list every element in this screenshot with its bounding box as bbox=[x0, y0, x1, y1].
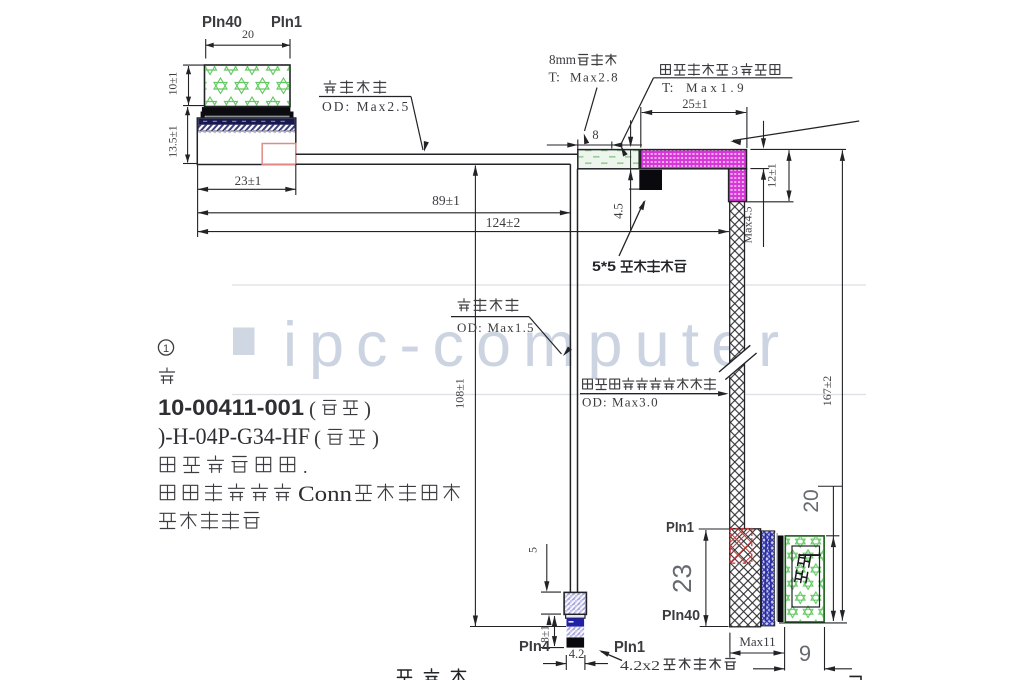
svg-text:10±1: 10±1 bbox=[168, 71, 180, 95]
svg-text:(: ( bbox=[309, 397, 316, 421]
svg-text:PIn40: PIn40 bbox=[662, 607, 700, 624]
svg-text:): ) bbox=[364, 397, 371, 421]
svg-text:1: 1 bbox=[163, 343, 169, 355]
svg-text:Conn: Conn bbox=[298, 481, 352, 506]
svg-text:8: 8 bbox=[592, 128, 598, 142]
svg-text:(: ( bbox=[314, 426, 321, 450]
svg-text:124±2: 124±2 bbox=[486, 215, 520, 230]
svg-text:5*5: 5*5 bbox=[592, 258, 616, 274]
svg-text:20: 20 bbox=[242, 27, 254, 41]
svg-text:OD: Max1.5: OD: Max1.5 bbox=[457, 320, 535, 335]
svg-text:.: . bbox=[303, 457, 308, 477]
svg-text:Max11: Max11 bbox=[739, 634, 775, 649]
svg-text:89±1: 89±1 bbox=[432, 193, 460, 208]
svg-text:Max2.8: Max2.8 bbox=[570, 70, 619, 85]
svg-text:12±1: 12±1 bbox=[765, 163, 779, 188]
svg-text:T:: T: bbox=[662, 80, 673, 95]
svg-text:9: 9 bbox=[799, 641, 811, 666]
svg-text:4.2: 4.2 bbox=[569, 647, 585, 661]
svg-text:20: 20 bbox=[800, 489, 823, 512]
svg-text:3: 3 bbox=[732, 63, 739, 78]
svg-text:108±1: 108±1 bbox=[453, 378, 467, 409]
svg-text:10-00411-001: 10-00411-001 bbox=[158, 395, 304, 420]
svg-text:): ) bbox=[372, 426, 379, 450]
svg-text:23: 23 bbox=[667, 564, 697, 593]
svg-text:13.5±1: 13.5±1 bbox=[168, 125, 180, 157]
svg-text:4.2x2: 4.2x2 bbox=[620, 659, 660, 674]
svg-text:25±1: 25±1 bbox=[682, 97, 708, 111]
svg-text:T:: T: bbox=[549, 70, 560, 85]
svg-text:23±1: 23±1 bbox=[235, 173, 262, 188]
svg-text:PIn1: PIn1 bbox=[666, 519, 694, 536]
svg-text:8mm: 8mm bbox=[549, 52, 576, 67]
svg-text:ipc-computer: ipc-computer bbox=[283, 310, 791, 380]
svg-text:OD: Max2.5: OD: Max2.5 bbox=[322, 99, 410, 114]
svg-text:PIn1: PIn1 bbox=[271, 14, 302, 31]
svg-text:5: 5 bbox=[526, 547, 540, 553]
svg-text:167±2: 167±2 bbox=[820, 376, 834, 407]
svg-text:Max1.9: Max1.9 bbox=[686, 80, 747, 95]
svg-text:PIn4: PIn4 bbox=[519, 638, 551, 655]
svg-text:PIn40: PIn40 bbox=[202, 14, 242, 31]
svg-text:4.5: 4.5 bbox=[612, 203, 626, 219]
svg-text:)-H-04P-G34-HF: )-H-04P-G34-HF bbox=[158, 424, 310, 449]
svg-text:OD: Max3.0: OD: Max3.0 bbox=[582, 395, 659, 410]
svg-text:PIn1: PIn1 bbox=[614, 639, 645, 656]
